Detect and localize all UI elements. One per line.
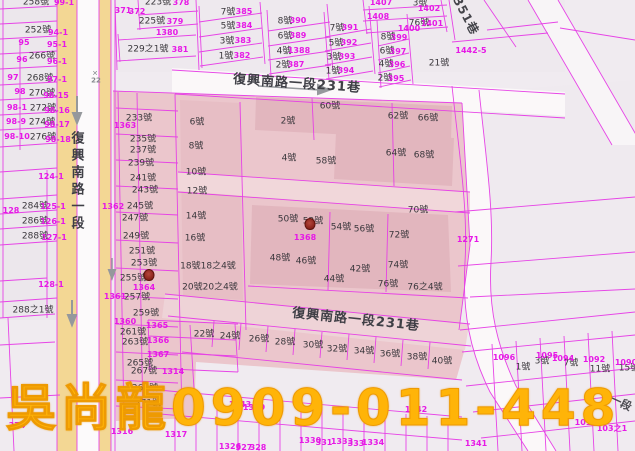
house-number-label: 64號: [386, 150, 406, 159]
house-number-label: 6號: [190, 119, 205, 128]
lot-number-label: 125-1: [40, 203, 66, 211]
map-marker-icon[interactable]: [305, 218, 316, 230]
house-number-label: 74號: [388, 262, 408, 271]
lot-number-label: 1092: [583, 356, 605, 364]
house-number-label: 28號: [275, 339, 295, 348]
lot-number-label: 328: [250, 444, 267, 451]
lot-number-label: 1334: [362, 439, 384, 447]
house-number-label: 245號: [127, 203, 153, 212]
house-number-label: 12號: [187, 188, 207, 197]
lot-number-label: 378: [173, 0, 190, 7]
lot-number-label: 98-18: [45, 136, 71, 144]
house-number-label: 56號: [354, 226, 374, 235]
house-number-label: 257號: [124, 294, 150, 303]
house-number-label: 239號: [128, 160, 154, 169]
survey-mark-label: 22: [91, 78, 101, 85]
house-number-label: 58號: [316, 158, 336, 167]
house-number-label: 42號: [350, 266, 370, 275]
house-number-label: 4號: [282, 155, 297, 164]
house-number-label: 223號: [145, 0, 171, 8]
house-number-label: 225號: [139, 18, 165, 27]
lot-number-label: 126-1: [40, 218, 66, 226]
house-number-label: 3號: [220, 38, 235, 47]
lot-number-label: 392: [341, 39, 358, 47]
house-number-label: 60號: [320, 103, 340, 112]
lot-number-label: 383: [235, 37, 252, 45]
house-number-label: 40號: [432, 358, 452, 367]
lot-number-label: 1341: [465, 440, 487, 448]
lot-number-label: 1365: [146, 322, 168, 330]
lot-number-label: 95: [18, 39, 29, 47]
map-marker-icon[interactable]: [144, 269, 155, 281]
lot-number-label: 395: [388, 75, 405, 83]
house-number-label: 16號: [185, 235, 205, 244]
house-number-label: 259號: [133, 310, 159, 319]
house-number-label: 76之4號: [407, 284, 442, 293]
lot-number-label: 331: [316, 439, 333, 447]
house-number-label: 76號: [378, 281, 398, 290]
lot-number-label: 391: [342, 24, 359, 32]
house-number-label: 26號: [249, 336, 269, 345]
lot-number-label: 1094: [552, 355, 574, 363]
house-number-label: 258號: [23, 0, 49, 8]
road-name-label: 復興南路一段231巷: [233, 73, 362, 95]
house-number-label: 24號: [220, 333, 240, 342]
house-number-label: 243號: [132, 187, 158, 196]
road-name-label: 復興南路一段: [70, 131, 83, 233]
lot-number-label: 1407: [370, 0, 392, 7]
house-number-label: 20號20之4號: [182, 284, 238, 293]
house-number-label: 72號: [389, 232, 409, 241]
house-number-label: 30號: [303, 342, 323, 351]
house-number-label: 229之1號: [128, 46, 169, 55]
house-number-label: 288之1號: [13, 307, 54, 316]
house-number-label: 68號: [414, 152, 434, 161]
lot-number-label: 393: [339, 53, 356, 61]
lot-number-label: 397: [390, 48, 407, 56]
house-number-label: 263號: [122, 339, 148, 348]
house-number-label: 253號: [131, 260, 157, 269]
lot-number-label: 396: [389, 61, 406, 69]
lot-number-label: 372: [129, 8, 146, 16]
lot-number-label: 98-10: [4, 133, 30, 141]
house-number-label: 36號: [380, 351, 400, 360]
house-number-label: 66號: [418, 115, 438, 124]
lot-number-label: 128-1: [38, 281, 64, 289]
lot-number-label: 1401: [421, 20, 443, 28]
lot-number-label: 1271: [457, 236, 479, 244]
house-number-label: 34號: [354, 348, 374, 357]
lot-number-label: 1360: [114, 318, 136, 326]
lot-number-label: 390: [290, 17, 307, 25]
house-number-label: 7號: [221, 9, 236, 18]
watermark-text: 吳尚龍0909-011-448: [6, 368, 635, 440]
house-number-label: 54號: [331, 224, 351, 233]
house-number-label: 48號: [270, 255, 290, 264]
house-number-label: 235號: [130, 136, 156, 145]
house-number-label: 8號: [189, 143, 204, 152]
lot-number-label: 1400: [398, 25, 420, 33]
house-number-label: 44號: [324, 276, 344, 285]
house-number-label: 2號: [281, 118, 296, 127]
house-number-label: 5號: [221, 23, 236, 32]
house-number-label: 22號: [194, 331, 214, 340]
lot-number-label: 379: [167, 18, 184, 26]
lot-number-label: 127-1: [41, 234, 67, 242]
lot-number-label: 1367: [147, 351, 169, 359]
lot-number-label: 1361: [104, 293, 126, 301]
lot-number-label: 98-1: [7, 104, 27, 112]
lot-number-label: 1380: [156, 29, 178, 37]
house-number-label: 261號: [120, 329, 146, 338]
lot-number-label: 96-1: [47, 58, 67, 66]
house-number-label: 14號: [186, 213, 206, 222]
road-name-label: 351巷: [451, 0, 481, 37]
lot-number-label: 97-1: [47, 76, 67, 84]
lot-number-label: 1402: [418, 5, 440, 13]
lot-number-label: 1364: [133, 284, 155, 292]
lot-number-label: 98-9: [6, 118, 26, 126]
road-name-label: 復興南路一段231巷: [292, 307, 421, 333]
house-number-label: 18號18之4號: [180, 263, 236, 272]
house-number-label: 249號: [123, 233, 149, 242]
lot-number-label: 1096: [493, 354, 515, 362]
lot-number-label: 94-1: [48, 29, 68, 37]
lot-number-label: 1368: [294, 234, 316, 242]
lot-number-label: 124-1: [38, 173, 64, 181]
lot-number-label: 95-1: [47, 41, 67, 49]
lot-number-label: 384: [236, 22, 253, 30]
lot-number-label: 96: [16, 56, 27, 64]
lot-number-label: 1366: [147, 337, 169, 345]
house-number-label: 10號: [186, 169, 206, 178]
lot-number-label: 387: [288, 61, 305, 69]
lot-number-label: 98: [14, 88, 25, 96]
house-number-label: 46號: [296, 258, 316, 267]
lot-number-label: 1363: [114, 122, 136, 130]
lot-number-label: 98-17: [44, 121, 70, 129]
lot-number-label: 99-1: [54, 0, 74, 7]
house-number-label: 237號: [130, 147, 156, 156]
lot-number-label: 385: [236, 8, 253, 16]
house-number-label: 247號: [122, 215, 148, 224]
lot-number-label: 98-16: [44, 107, 70, 115]
house-number-label: 38號: [407, 354, 427, 363]
cadastral-map-viewport[interactable]: 復興南路一段復興南路一段231巷復興南路一段231巷351巷一段✕22258號2…: [0, 0, 635, 451]
lot-number-label: 1408: [367, 13, 389, 21]
house-number-label: 32號: [327, 346, 347, 355]
lot-number-label: 128: [3, 207, 20, 215]
lot-number-label: 1362: [102, 203, 124, 211]
lot-number-label: 389: [290, 32, 307, 40]
lot-number-label: 1388: [288, 47, 310, 55]
lot-number-label: 1442-5: [455, 47, 486, 55]
house-number-label: 62號: [388, 113, 408, 122]
house-number-label: 1號: [219, 53, 234, 62]
house-number-label: 50號: [278, 216, 298, 225]
house-number-label: 21號: [429, 60, 449, 69]
lot-number-label: 381: [172, 46, 189, 54]
house-number-label: 251號: [129, 248, 155, 257]
lot-number-label: 97: [7, 74, 18, 82]
lot-number-label: 399: [391, 34, 408, 42]
lot-number-label: 98-15: [43, 92, 69, 100]
house-number-label: 70號: [408, 207, 428, 216]
house-number-label: 241號: [130, 175, 156, 184]
lot-number-label: 1090: [615, 359, 635, 367]
lot-number-label: 394: [338, 67, 355, 75]
lot-number-label: 382: [234, 52, 251, 60]
